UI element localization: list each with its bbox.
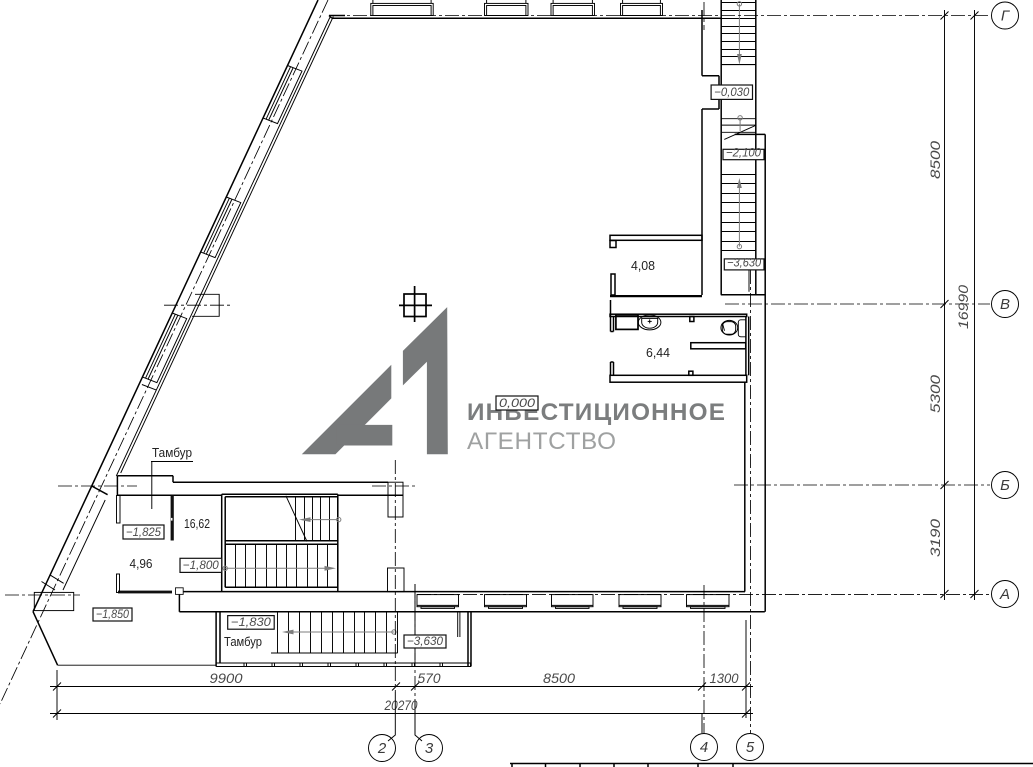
svg-text:2: 2 (377, 740, 387, 757)
svg-text:6,44: 6,44 (646, 345, 670, 360)
svg-text:А: А (999, 586, 1010, 603)
svg-text:5300: 5300 (928, 374, 943, 413)
svg-text:Тамбур: Тамбур (152, 445, 192, 460)
svg-text:Б: Б (1000, 477, 1010, 494)
svg-text:−3,630: −3,630 (407, 634, 443, 648)
svg-text:0,000: 0,000 (499, 396, 535, 410)
svg-text:4,08: 4,08 (631, 258, 655, 273)
svg-text:−0,030: −0,030 (714, 85, 749, 99)
svg-text:16990: 16990 (956, 284, 971, 329)
svg-text:В: В (1000, 296, 1010, 313)
svg-text:3190: 3190 (928, 518, 943, 557)
svg-text:1300: 1300 (710, 671, 739, 686)
svg-text:−2,100: −2,100 (726, 146, 761, 160)
svg-text:−1,830: −1,830 (231, 615, 271, 629)
svg-text:3: 3 (425, 740, 434, 757)
svg-text:20270: 20270 (384, 698, 418, 713)
svg-text:570: 570 (418, 671, 441, 686)
svg-text:−1,850: −1,850 (96, 607, 129, 621)
svg-text:4: 4 (700, 739, 708, 756)
svg-text:АГЕНТСТВО: АГЕНТСТВО (467, 428, 616, 455)
svg-text:8500: 8500 (928, 140, 943, 179)
svg-text:5: 5 (746, 739, 755, 756)
svg-text:4,96: 4,96 (130, 556, 153, 571)
svg-text:9900: 9900 (210, 671, 244, 686)
svg-text:16,62: 16,62 (184, 516, 210, 531)
svg-text:−1,825: −1,825 (126, 525, 161, 539)
svg-text:−1,800: −1,800 (183, 558, 219, 572)
svg-text:8500: 8500 (543, 671, 576, 686)
svg-text:−3,630: −3,630 (727, 256, 761, 270)
svg-text:Тамбур: Тамбур (224, 634, 262, 649)
